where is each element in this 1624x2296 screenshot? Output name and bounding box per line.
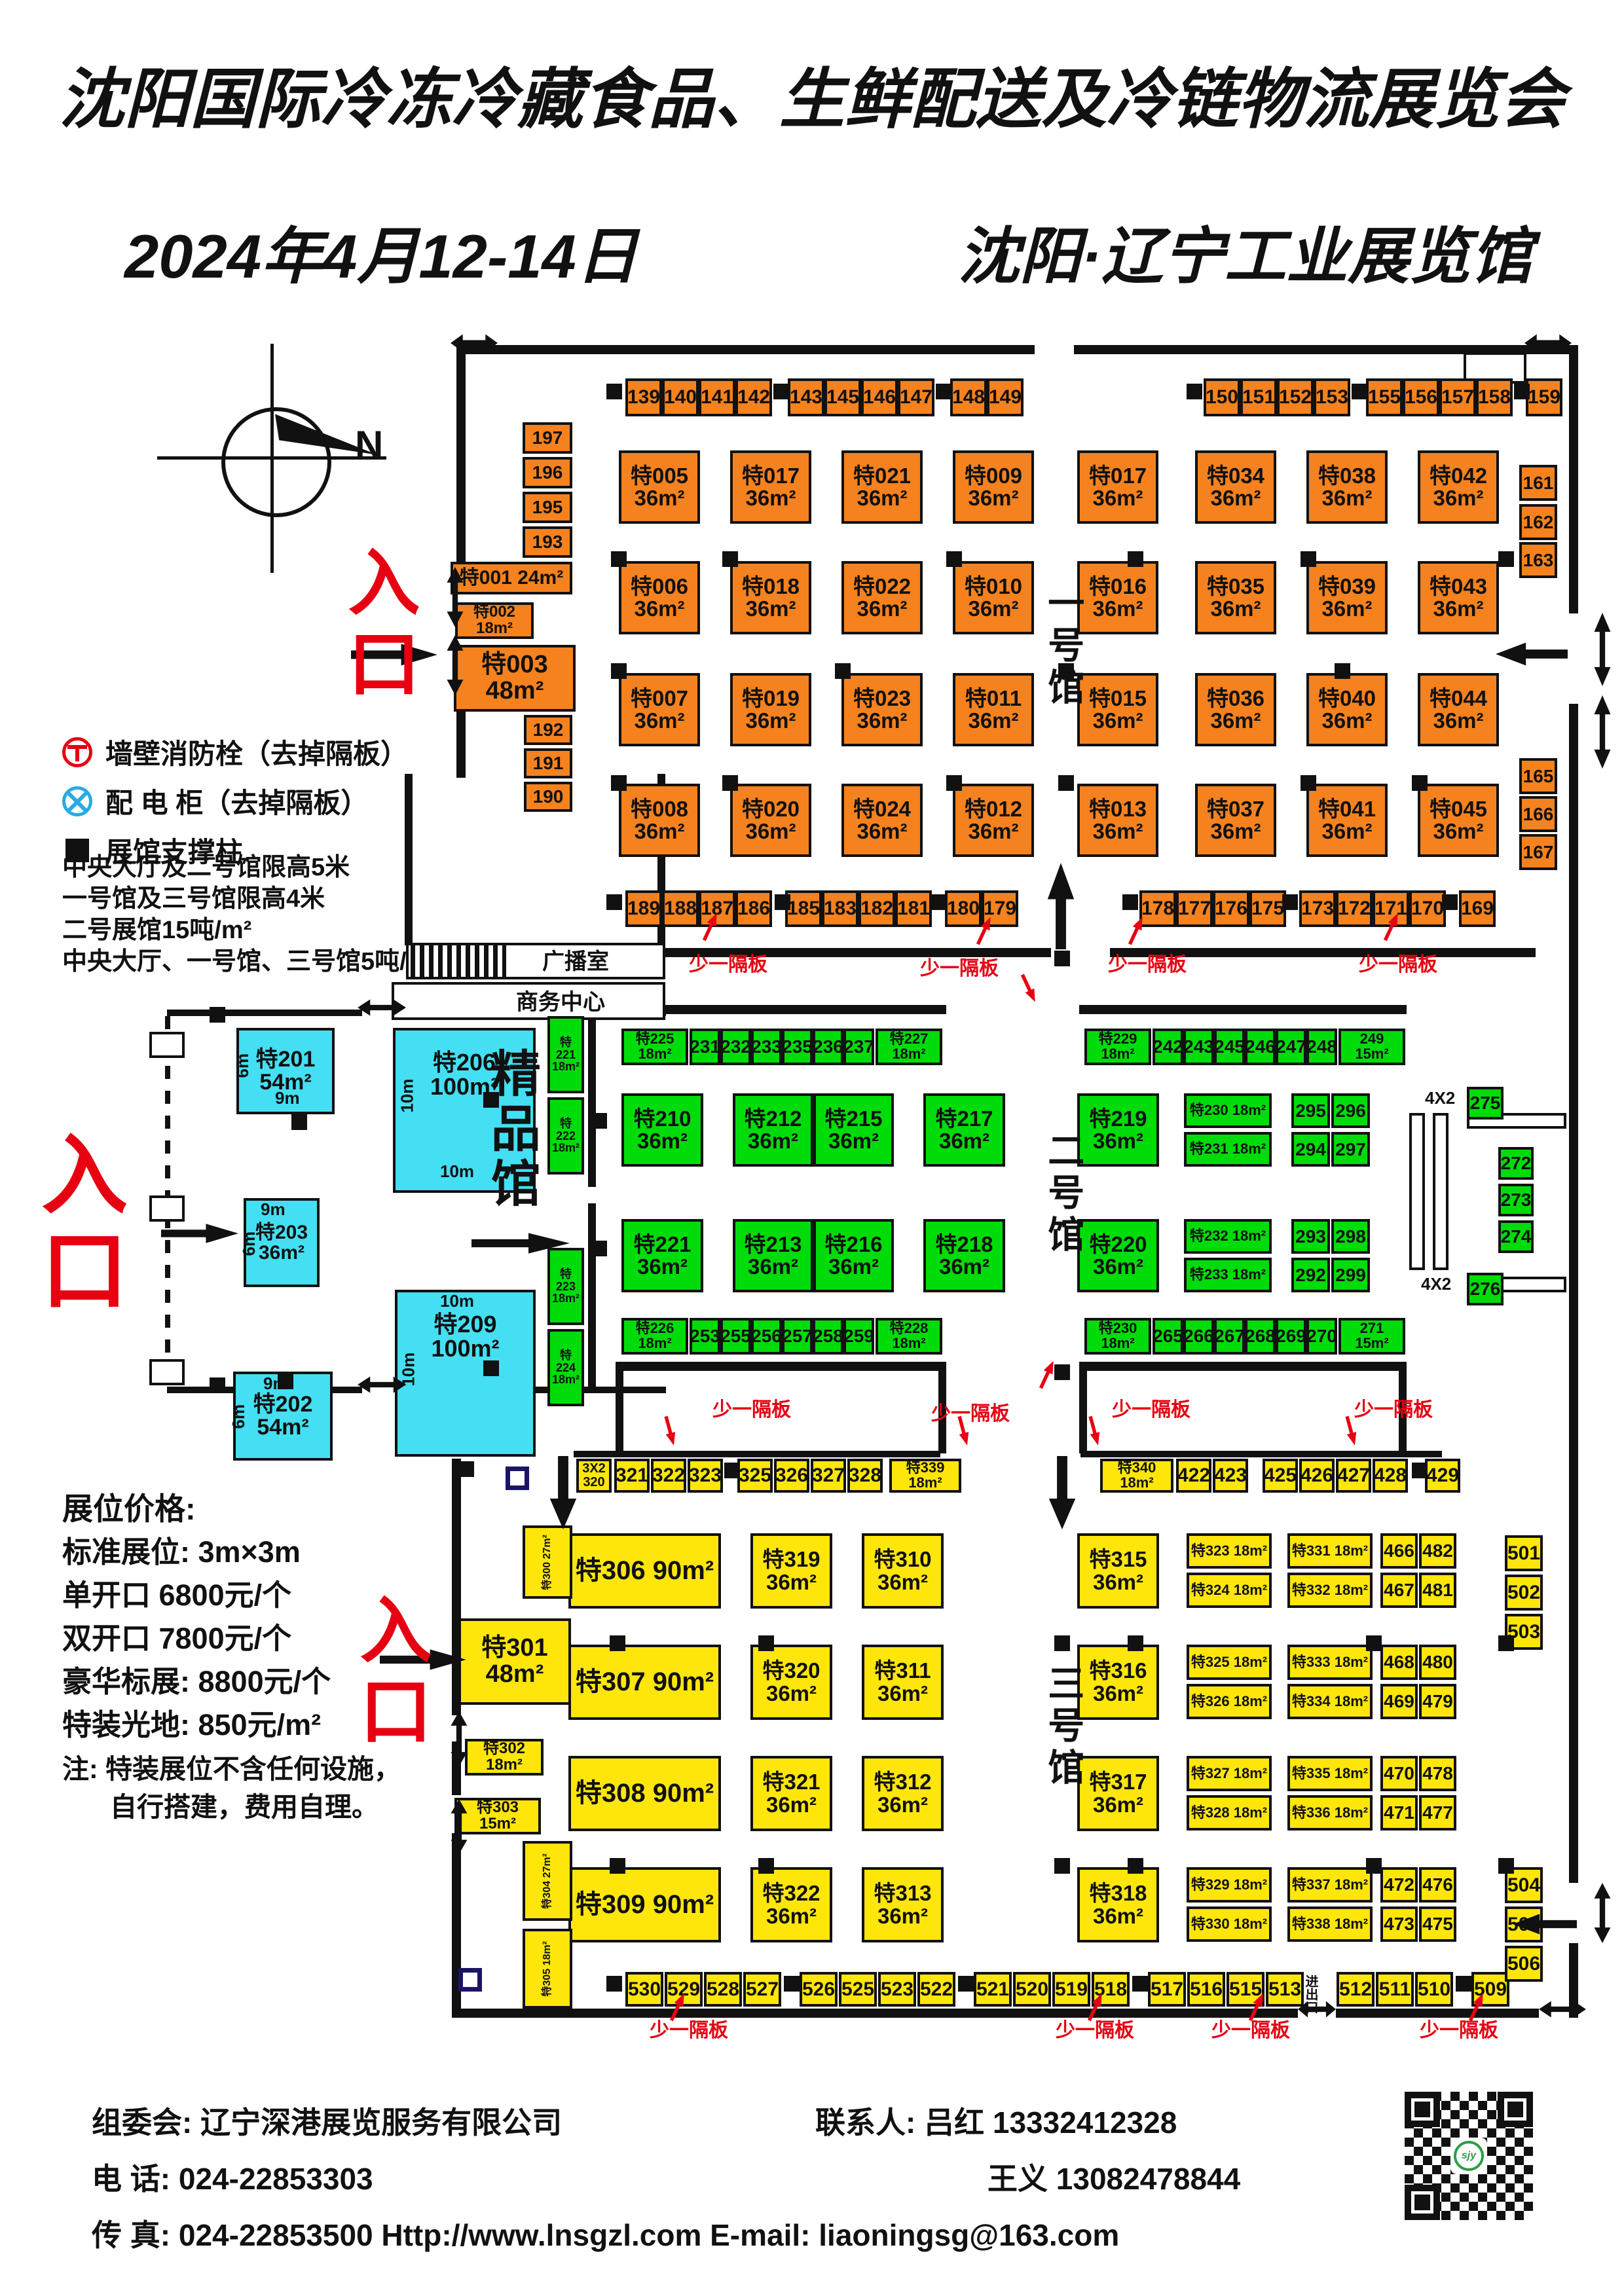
booth-477: 477: [1419, 1795, 1456, 1831]
structure-box: [1409, 1113, 1425, 1270]
structure-box: [149, 1195, 185, 1222]
support-pillar: [610, 1858, 625, 1874]
booth-245: 245: [1214, 1029, 1245, 1065]
booth-172: 172: [1336, 890, 1373, 927]
booth-178: 178: [1139, 890, 1176, 927]
booth-325: 325: [737, 1459, 773, 1493]
page-title: 沈阳国际冷冻冷藏食品、生鲜配送及冷链物流展览会: [0, 46, 1624, 141]
booth-175: 175: [1249, 890, 1286, 927]
booth-528: 528: [704, 1972, 742, 2007]
booth-特008: 特00836m²: [619, 784, 700, 857]
booth-322: 322: [651, 1459, 686, 1493]
booth-265: 265: [1153, 1318, 1183, 1355]
booth-182: 182: [858, 890, 895, 927]
booth-195: 195: [523, 492, 572, 523]
support-pillar: [610, 1635, 625, 1651]
support-pillar: [1366, 1858, 1382, 1874]
booth-247: 247: [1276, 1029, 1306, 1065]
booth-特224: 特22418m²: [547, 1329, 584, 1406]
pricing-heading: 展位价格:: [62, 1484, 196, 1529]
booth-327: 327: [811, 1459, 846, 1493]
qr-finder: [1405, 2185, 1440, 2220]
booth-特306: 特306 90m²: [568, 1533, 721, 1609]
booth-特222: 特22218m²: [547, 1097, 584, 1175]
support-pillar: [946, 775, 962, 791]
booth-321: 321: [614, 1459, 650, 1493]
venue-name: 沈阳·辽宁工业展览馆: [958, 207, 1532, 296]
booth-特332: 特332 18m²: [1287, 1573, 1373, 1608]
legend-text: 配 电 柜（去掉隔板）: [105, 781, 368, 821]
booth-233: 233: [751, 1029, 782, 1065]
power-cabinet-icon: [62, 786, 92, 816]
booth-512: 512: [1337, 1972, 1375, 2007]
wall: [574, 1451, 940, 1457]
booth-特034: 特03436m²: [1195, 450, 1276, 524]
booth-527: 527: [743, 1972, 781, 2007]
partition-pointer-arrow: [1018, 972, 1039, 1004]
support-pillar: [1054, 1364, 1070, 1380]
booth-517: 517: [1148, 1972, 1186, 2007]
booth-特325: 特325 18m²: [1187, 1645, 1272, 1680]
booth-246: 246: [1245, 1029, 1276, 1065]
booth-151: 151: [1240, 378, 1277, 416]
booth-475: 475: [1419, 1906, 1456, 1942]
dim-label: 9m: [261, 1201, 286, 1218]
booth-特327: 特327 18m²: [1187, 1756, 1272, 1791]
support-pillar: [591, 1241, 607, 1256]
pricing-line: 豪华标展: 8800元/个: [62, 1658, 331, 1700]
booth-143: 143: [788, 378, 824, 416]
booth-特323: 特323 18m²: [1187, 1533, 1272, 1569]
booth-167: 167: [1519, 834, 1557, 870]
booth-253: 253: [690, 1318, 720, 1355]
booth-155: 155: [1366, 378, 1403, 416]
booth-294: 294: [1291, 1132, 1330, 1167]
wall: [1336, 2009, 1539, 2018]
booth-特219: 特21936m²: [1077, 1093, 1159, 1167]
booth-特305: 特305 18m²: [523, 1929, 572, 2009]
hall-notes: 中央大厅及二号馆限高5米 一号馆及三号馆限高4米 二号展馆15吨/m² 中央大厅…: [62, 852, 437, 978]
booth-特301: 特30148m²: [458, 1618, 571, 1705]
booth-423: 423: [1213, 1459, 1248, 1493]
support-pillar: [291, 1114, 307, 1130]
booth-特017: 特01736m²: [1077, 450, 1158, 524]
hatch-block: [411, 945, 506, 977]
partition-pointer-arrow: [661, 1415, 678, 1446]
booth-147: 147: [898, 378, 934, 416]
booth-157: 157: [1439, 378, 1476, 416]
booth-特037: 特03736m²: [1195, 784, 1276, 857]
booth-特230: 特230 18m²: [1184, 1093, 1272, 1128]
subtitle-row: 2024年4月12-14日 沈阳·辽宁工业展览馆: [124, 207, 1532, 296]
booth-特227: 特227 18m²: [876, 1029, 942, 1065]
contact-person-2: 王义 13082478844: [987, 2155, 1240, 2198]
booth-特045: 特04536m²: [1418, 784, 1499, 857]
booth-特307: 特307 90m²: [568, 1645, 721, 1720]
pricing-note: 自行搭建，费用自理。: [110, 1785, 378, 1824]
booth-276: 276: [1467, 1273, 1504, 1305]
booth-185: 185: [785, 890, 822, 927]
booth-146: 146: [861, 378, 898, 416]
north-label: N: [355, 424, 383, 465]
booth-188: 188: [662, 890, 699, 927]
booth-328: 328: [847, 1459, 883, 1493]
support-pillar: [1335, 663, 1350, 679]
booth-526: 526: [800, 1972, 838, 2007]
booth-特035: 特03536m²: [1195, 561, 1276, 634]
booth-476: 476: [1419, 1867, 1456, 1903]
partition-note: 少一隔板: [689, 955, 767, 975]
support-pillar: [606, 384, 622, 399]
structure-box: [1433, 1113, 1449, 1270]
direction-arrow: [161, 1223, 238, 1244]
booth-158: 158: [1476, 378, 1513, 416]
booth-特340: 特340 18m²: [1100, 1459, 1173, 1493]
booth-特040: 特04036m²: [1306, 673, 1388, 746]
support-pillar: [1412, 1463, 1428, 1478]
booth-141: 141: [699, 378, 735, 416]
support-pillar: [1442, 894, 1458, 910]
booth-520: 520: [1013, 1972, 1051, 2007]
support-pillar: [931, 894, 946, 910]
booth-197: 197: [523, 422, 572, 454]
fire-hydrant-icon: [62, 737, 92, 767]
booth-特308: 特308 90m²: [568, 1756, 721, 1831]
booth-519: 519: [1052, 1972, 1090, 2007]
booth-156: 156: [1403, 378, 1439, 416]
support-pillar: [483, 1360, 499, 1376]
booth-特321: 特32136m²: [750, 1756, 832, 1831]
booth-特337: 特337 18m²: [1287, 1867, 1373, 1903]
booth-150: 150: [1204, 378, 1240, 416]
booth-特339: 特339 18m²: [889, 1459, 961, 1493]
dim-label: 9m: [263, 1375, 288, 1393]
support-pillar: [1498, 1635, 1514, 1651]
support-pillar: [606, 894, 622, 910]
entrance-label: 入口: [31, 1129, 122, 1321]
booth-466: 466: [1380, 1533, 1418, 1569]
dim-label: 6m: [234, 1053, 251, 1078]
booth-特210: 特21036m²: [621, 1093, 703, 1167]
partition-note: 少一隔板: [650, 2020, 728, 2041]
booth-506: 506: [1505, 1946, 1543, 1982]
booth-270: 270: [1306, 1318, 1337, 1355]
booth-特012: 特01236m²: [953, 784, 1034, 857]
entrance-label: 入口: [339, 545, 415, 707]
booth-501: 501: [1505, 1535, 1543, 1571]
booth-468: 468: [1380, 1645, 1418, 1680]
support-pillar: [958, 1976, 974, 1992]
booth-480: 480: [1419, 1645, 1456, 1680]
booth-162: 162: [1519, 504, 1557, 540]
booth-特303: 特30315m²: [454, 1798, 541, 1834]
booth-152: 152: [1277, 378, 1314, 416]
booth-273: 273: [1498, 1184, 1534, 1216]
booth-523: 523: [878, 1972, 916, 2007]
booth-237: 237: [843, 1029, 874, 1065]
support-pillar: [1352, 384, 1367, 399]
support-pillar: [1514, 384, 1530, 399]
legend-text: 墙壁消防栓（去掉隔板）: [105, 732, 408, 772]
booth-192: 192: [524, 715, 572, 745]
booth-特338: 特338 18m²: [1287, 1906, 1373, 1942]
booth-161: 161: [1519, 465, 1557, 501]
booth-特304: 特304 27m²: [523, 1841, 572, 1921]
support-pillar: [1187, 384, 1202, 399]
wall: [588, 1203, 596, 1388]
wall: [1569, 704, 1578, 1883]
booth-187: 187: [699, 890, 735, 927]
booth-特231: 特231 18m²: [1184, 1132, 1272, 1167]
contact-person-1: 联系人: 吕红 13332412328: [815, 2099, 1177, 2142]
booth-471: 471: [1380, 1795, 1418, 1831]
booth-特232: 特232 18m²: [1184, 1219, 1272, 1254]
support-pillar: [611, 663, 627, 679]
pricing-line: 标准展位: 3m×3m: [62, 1528, 301, 1571]
booth-特013: 特01336m²: [1077, 784, 1158, 857]
booth-特038: 特03836m²: [1306, 450, 1388, 524]
support-pillar: [611, 775, 627, 791]
booth-193: 193: [523, 526, 572, 558]
booth-296: 296: [1331, 1093, 1370, 1128]
booth-特016: 特01636m²: [1077, 561, 1158, 634]
booth-473: 473: [1380, 1906, 1418, 1942]
booth-特019: 特01936m²: [730, 673, 811, 746]
booth-482: 482: [1419, 1533, 1456, 1569]
wall: [616, 1371, 623, 1453]
booth-特001: 特001 24m²: [451, 562, 572, 594]
booth-169: 169: [1459, 890, 1496, 927]
partition-pointer-arrow: [1086, 1415, 1103, 1446]
wall: [619, 948, 1051, 957]
booth-530: 530: [625, 1972, 663, 2007]
hall3-label: 三号馆: [1044, 1664, 1082, 1790]
support-pillar: [1128, 1858, 1143, 1874]
booth-特228: 特228 18m²: [876, 1318, 942, 1355]
booth-特007: 特00736m²: [619, 673, 700, 746]
booth-特006: 特00636m²: [619, 561, 700, 634]
hall-note: 一号馆及三号馆限高4米: [62, 884, 437, 915]
booth-274: 274: [1498, 1220, 1534, 1253]
support-pillar: [1301, 551, 1316, 567]
booth-145: 145: [824, 378, 861, 416]
wall: [458, 345, 1035, 354]
booth-236: 236: [813, 1029, 843, 1065]
support-pillar: [1128, 1635, 1143, 1651]
wall: [588, 1011, 596, 1187]
size-4x2-label: 4X2: [1421, 1275, 1451, 1293]
booth-163: 163: [1519, 542, 1557, 578]
gate-label: 进出口: [1303, 1975, 1317, 2014]
booth-235: 235: [782, 1029, 813, 1065]
booth-特333: 特333 18m²: [1287, 1645, 1373, 1680]
wall: [1569, 345, 1578, 613]
booth-特218: 特21836m²: [923, 1219, 1005, 1292]
booth-516: 516: [1187, 1972, 1225, 2007]
booth-248: 248: [1306, 1029, 1337, 1065]
dim-label: 10m: [399, 1353, 417, 1387]
booth-特017: 特01736m²: [730, 450, 811, 524]
booth-166: 166: [1519, 796, 1557, 832]
booth-272: 272: [1498, 1147, 1534, 1180]
booth-478: 478: [1419, 1756, 1456, 1791]
booth-特018: 特01836m²: [730, 561, 811, 634]
hall-note: 中央大厅、一号馆、三号馆5吨/m²: [62, 947, 437, 978]
booth-特328: 特328 18m²: [1187, 1795, 1272, 1831]
booth-特022: 特02236m²: [841, 561, 923, 634]
booth-190: 190: [524, 782, 572, 812]
booth-特043: 特04336m²: [1418, 561, 1499, 634]
booth-426: 426: [1299, 1459, 1335, 1493]
booth-特322: 特32236m²: [750, 1867, 832, 1942]
booth-特309: 特309 90m²: [568, 1867, 721, 1942]
support-pillar: [773, 384, 789, 399]
support-pillar: [1412, 775, 1428, 791]
support-pillar: [1132, 1976, 1148, 1992]
entrance-label: 入口: [351, 1592, 427, 1755]
legend-item: 配 电 柜（去掉隔板）: [62, 781, 408, 821]
booth-268: 268: [1245, 1318, 1276, 1355]
booth-173: 173: [1299, 890, 1336, 927]
support-pillar: [1054, 1635, 1070, 1651]
booth-特310: 特31036m²: [862, 1533, 944, 1609]
booth-181: 181: [895, 890, 932, 927]
booth-特324: 特324 18m²: [1187, 1573, 1272, 1608]
support-pillar: [1301, 775, 1316, 791]
support-pillar: [611, 551, 627, 567]
booth-242: 242: [1153, 1029, 1183, 1065]
hall-note: 二号展馆15吨/m²: [62, 915, 437, 947]
support-pillar: [210, 1377, 225, 1393]
compass-line-v: [270, 344, 274, 573]
booth-特023: 特02336m²: [841, 673, 923, 746]
wall: [1079, 1005, 1407, 1014]
wall: [1079, 1371, 1087, 1453]
support-pillar: [591, 1113, 607, 1129]
booth-特220: 特22036m²: [1077, 1219, 1159, 1292]
support-pillar: [784, 1976, 800, 1992]
booth-特042: 特04236m²: [1418, 450, 1499, 524]
utility-box: [506, 1467, 529, 1490]
support-pillar: [1498, 1858, 1514, 1874]
booth-特020: 特02036m²: [730, 784, 811, 857]
booth-特336: 特336 18m²: [1287, 1795, 1373, 1831]
booth-243: 243: [1183, 1029, 1214, 1065]
booth-180: 180: [945, 890, 982, 927]
booth-186: 186: [735, 890, 772, 927]
support-pillar: [606, 1976, 622, 1992]
booth-特021: 特02136m²: [841, 450, 923, 524]
booth-特330: 特330 18m²: [1187, 1906, 1272, 1942]
support-pillar: [946, 551, 962, 567]
booth-特215: 特21536m²: [813, 1093, 894, 1167]
booth-3X2: 3X2320: [576, 1459, 612, 1493]
booth-特334: 特334 18m²: [1287, 1684, 1373, 1719]
wall: [405, 774, 413, 945]
booth-529: 529: [665, 1972, 703, 2007]
booth-特226: 特226 18m²: [621, 1318, 688, 1355]
booth-267: 267: [1214, 1318, 1245, 1355]
booth-469: 469: [1380, 1684, 1418, 1719]
direction-arrow: [1496, 642, 1568, 666]
booth-479: 479: [1419, 1684, 1456, 1719]
partition-note: 少一隔板: [1108, 955, 1187, 975]
booth-特335: 特335 18m²: [1287, 1756, 1373, 1791]
fax-web-email: 传 真: 024-22853500 Http://www.lnsgzl.com …: [92, 2212, 1119, 2255]
wall: [167, 1010, 362, 1016]
wall: [452, 2009, 1298, 2018]
direction-arrow: [1594, 1883, 1611, 1943]
dim-label: 9m: [275, 1089, 300, 1107]
booth-275: 275: [1467, 1087, 1504, 1120]
support-pillar: [758, 1635, 774, 1651]
booth-170: 170: [1409, 890, 1446, 927]
partition-note: 少一隔板: [1420, 2020, 1498, 2041]
support-pillar: [1128, 551, 1143, 567]
hall2-label: 二号馆: [1044, 1131, 1082, 1257]
booth-177: 177: [1176, 890, 1213, 927]
support-pillar: [1054, 1858, 1070, 1874]
booth-428: 428: [1373, 1459, 1408, 1493]
pricing-line: 单开口 6800元/个: [62, 1571, 291, 1614]
pricing-line: 双开口 7800元/个: [62, 1614, 291, 1657]
booth-472: 472: [1380, 1867, 1418, 1903]
support-pillar: [1122, 894, 1138, 910]
wall: [456, 345, 466, 564]
booth-特212: 特21236m²: [733, 1093, 813, 1167]
booth-特002: 特00218m²: [455, 602, 534, 639]
booth-521: 521: [974, 1972, 1012, 2007]
booth-259: 259: [843, 1318, 874, 1355]
support-pillar: [458, 1461, 474, 1477]
booth-425: 425: [1263, 1459, 1298, 1493]
booth-269: 269: [1276, 1318, 1306, 1355]
booth-513: 513: [1266, 1972, 1304, 2007]
booth-297: 297: [1331, 1132, 1370, 1167]
legend-item: 墙壁消防栓（去掉隔板）: [62, 732, 408, 772]
support-pillar: [722, 551, 738, 567]
booth-298: 298: [1331, 1219, 1370, 1254]
booth-特302: 特30218m²: [465, 1739, 544, 1776]
booth-255: 255: [720, 1318, 751, 1355]
booth-特011: 特01136m²: [953, 673, 1034, 746]
booth-511: 511: [1376, 1972, 1414, 2007]
event-date: 2024年4月12-14日: [124, 207, 638, 296]
support-pillar: [1054, 951, 1070, 966]
booth-176: 176: [1213, 890, 1249, 927]
booth-特326: 特326 18m²: [1187, 1684, 1272, 1719]
booth-153: 153: [1314, 378, 1350, 416]
direction-arrow: [1046, 863, 1075, 949]
booth-249: 249 15m²: [1338, 1029, 1405, 1065]
qr-finder: [1405, 2092, 1440, 2127]
booth-323: 323: [688, 1459, 723, 1493]
booth-特233: 特233 18m²: [1184, 1258, 1272, 1292]
booth-427: 427: [1336, 1459, 1371, 1493]
support-pillar: [1456, 1976, 1471, 1992]
booth-特225: 特225 18m²: [621, 1029, 688, 1065]
booth-467: 467: [1380, 1573, 1418, 1608]
booth-特015: 特01536m²: [1077, 673, 1158, 746]
booth-148: 148: [950, 378, 987, 416]
support-pillar: [758, 1858, 774, 1874]
direction-arrow: [1048, 1456, 1077, 1529]
booth-特329: 特329 18m²: [1187, 1867, 1272, 1903]
structure-box: [149, 1359, 185, 1385]
booth-481: 481: [1419, 1573, 1456, 1608]
booth-特005: 特00536m²: [619, 450, 700, 524]
booth-特300: 特300 27m²: [523, 1525, 572, 1599]
